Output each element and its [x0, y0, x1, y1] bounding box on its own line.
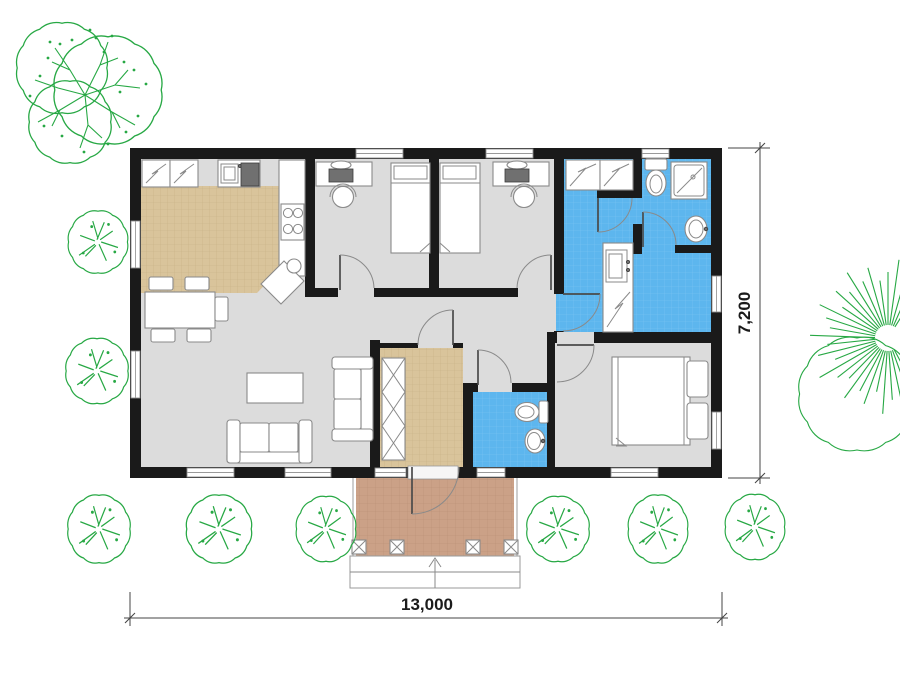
entry-door-opening [408, 466, 458, 479]
stairs [350, 556, 520, 588]
porch [350, 476, 520, 588]
bush [66, 338, 129, 403]
dimension-height: 7,200 [728, 142, 770, 484]
window-bottom-sidelight [375, 468, 406, 477]
floor-plan-page: 13,000 7,200 [0, 0, 900, 675]
laundry-closet [566, 160, 633, 190]
desk-lamp [507, 161, 527, 169]
coffee-table [247, 373, 303, 403]
shower [671, 162, 707, 199]
desk-lamp [331, 161, 351, 169]
large-tree [17, 23, 163, 164]
palm-burst [810, 260, 900, 414]
entry-hall [382, 358, 405, 460]
window-bottom-living2 [285, 468, 331, 477]
window-top-bathroom [642, 149, 669, 158]
bush [725, 494, 785, 559]
washbasin [525, 429, 545, 453]
wardrobe [382, 358, 405, 460]
fridge [241, 163, 259, 186]
round-sink [287, 259, 301, 273]
toilet [515, 401, 548, 423]
floor-plan-drawing: 13,000 7,200 [0, 0, 900, 675]
bush [628, 495, 688, 563]
desk-device [329, 169, 353, 182]
window-top-bedroom2 [486, 149, 533, 158]
dimension-width: 13,000 [124, 592, 728, 626]
sofa-vertical [332, 357, 373, 441]
window-bottom-wc [477, 468, 505, 477]
bush [68, 495, 131, 563]
bed-single [440, 163, 480, 253]
dining-table [145, 292, 215, 328]
bush [296, 496, 356, 561]
desk-chair [514, 187, 535, 208]
width-dimension-label: 13,000 [401, 595, 453, 614]
window-right-utility [712, 276, 721, 312]
washbasin [685, 216, 708, 242]
window-left-kitchen [131, 221, 140, 268]
desk-chair [333, 187, 354, 208]
cooktop [281, 204, 304, 240]
bush [68, 211, 128, 274]
toilet [645, 159, 667, 196]
window-right-bedroom3 [712, 412, 721, 449]
palm-tree [799, 260, 900, 451]
window-bottom-bedroom3 [611, 468, 658, 477]
sofa-horizontal [227, 420, 312, 463]
kitchen-cabinet [142, 160, 198, 187]
desk-device [505, 169, 529, 182]
height-dimension-label: 7,200 [735, 292, 754, 335]
utility-counter [603, 243, 633, 332]
window-top-bedroom1 [356, 149, 403, 158]
tree-dots [29, 29, 148, 154]
bush [527, 496, 590, 561]
bush [186, 495, 251, 563]
tree-branches [35, 42, 140, 148]
window-left-living [131, 351, 140, 398]
porch-floor [356, 478, 514, 556]
window-bottom-living1 [187, 468, 234, 477]
bed-single [391, 163, 430, 253]
